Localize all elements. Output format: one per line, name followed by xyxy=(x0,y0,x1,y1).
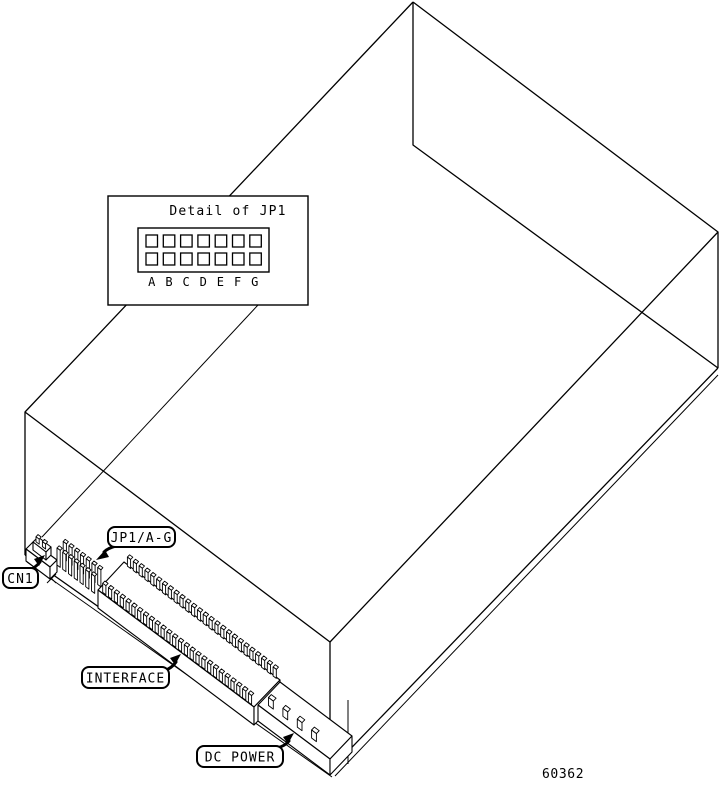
pin-face xyxy=(144,614,147,625)
jumper-pin-square xyxy=(163,253,175,265)
pin-face xyxy=(248,693,251,704)
jumper-pin-square xyxy=(215,253,227,265)
callout-dc-power-label: DC POWER xyxy=(205,751,276,766)
jp1-detail-inset: Detail of JP1 ABCDEFG xyxy=(108,196,308,305)
pin-face xyxy=(237,684,240,695)
pin-face xyxy=(151,575,154,586)
jumper-pin-square xyxy=(181,253,193,265)
pin-face xyxy=(244,645,247,656)
pin-face xyxy=(178,640,181,651)
pin-face xyxy=(145,570,148,581)
jumper-pin-square xyxy=(250,253,261,265)
pin-face xyxy=(132,605,135,616)
pin-face xyxy=(202,658,205,669)
jumper-pin-square xyxy=(181,235,193,247)
pin-face xyxy=(109,588,112,599)
pin-face xyxy=(232,636,235,648)
pin-face xyxy=(215,623,218,634)
jumper-pin-square xyxy=(163,235,175,247)
drive-diagram: Detail of JP1 ABCDEFG CN1 JP1/A-G INTERF… xyxy=(0,0,721,789)
pin-face xyxy=(157,579,160,590)
jumper-position-letter: B xyxy=(165,275,172,289)
pin-face xyxy=(126,601,129,612)
pin-face xyxy=(133,562,136,573)
jumper-position-letter: C xyxy=(182,275,189,289)
pin-face xyxy=(57,548,60,567)
pin-face xyxy=(273,667,276,678)
jumper-pin-square xyxy=(198,235,210,247)
jumper-position-letter: A xyxy=(148,275,156,289)
pin-face xyxy=(238,641,241,653)
part-number: 60362 xyxy=(542,767,584,782)
figure-canvas: Detail of JP1 ABCDEFG CN1 JP1/A-G INTERF… xyxy=(0,0,721,789)
pin-face xyxy=(114,592,117,603)
callout-cn1-label: CN1 xyxy=(7,572,33,587)
pin-face xyxy=(203,614,206,625)
pin-face xyxy=(86,570,89,589)
pin-face xyxy=(161,627,164,638)
jumper-position-letter: D xyxy=(200,275,207,289)
jumper-pin-square xyxy=(215,235,227,247)
pin-face xyxy=(225,676,228,687)
detail-leader-line xyxy=(42,305,258,537)
pin-face xyxy=(221,628,224,639)
pin-face xyxy=(196,654,199,665)
pin-face xyxy=(120,597,123,608)
pin-face xyxy=(250,649,253,660)
detail-inset-title: Detail of JP1 xyxy=(169,204,286,219)
pin-face xyxy=(231,680,234,691)
pin-face xyxy=(103,583,106,594)
pin-face xyxy=(155,623,158,635)
pin-face xyxy=(167,632,170,643)
jumper-pin-square xyxy=(233,235,245,247)
pin-face xyxy=(192,606,195,617)
pin-face xyxy=(69,557,72,576)
pin-face xyxy=(80,565,83,584)
pin-face xyxy=(209,619,212,630)
drive-body-outline xyxy=(25,2,718,770)
callout-jp1-label: JP1/A-G xyxy=(111,531,173,546)
pin-face xyxy=(208,662,211,673)
pin-face xyxy=(138,610,141,621)
pin-face xyxy=(74,561,77,580)
pin-face xyxy=(92,574,95,593)
jumper-position-letter: G xyxy=(251,275,258,289)
pin-face xyxy=(168,588,171,599)
pin-face xyxy=(162,584,165,595)
pin-face xyxy=(213,667,216,678)
pin-face xyxy=(139,566,142,577)
pin-face xyxy=(149,618,152,630)
jumper-pin-square xyxy=(146,235,158,247)
interface-connector xyxy=(98,555,280,725)
jumper-pin-square xyxy=(146,253,158,265)
jumper-position-letter: E xyxy=(217,275,224,289)
jumper-pin-square xyxy=(233,253,245,265)
pin-face xyxy=(227,632,230,643)
callout-jp1: JP1/A-G xyxy=(96,527,175,560)
jp1-jumper-block xyxy=(57,539,103,593)
pin-face xyxy=(127,557,130,568)
pin-face xyxy=(243,689,246,700)
jumper-pin-square xyxy=(250,235,261,247)
pin-face xyxy=(186,601,189,612)
pin-face xyxy=(256,654,259,665)
pin-face xyxy=(262,658,265,669)
pin-face xyxy=(267,663,270,674)
pin-face xyxy=(184,645,187,656)
callout-dc-power: DC POWER xyxy=(197,733,294,767)
pin-face xyxy=(190,649,193,660)
jumper-position-letter: F xyxy=(234,275,241,289)
pin-face xyxy=(173,636,176,647)
pin-face xyxy=(174,592,177,603)
callout-interface-label: INTERFACE xyxy=(86,672,165,687)
jumper-pin-square xyxy=(198,253,210,265)
pin-face xyxy=(98,568,101,587)
pin-face xyxy=(63,552,66,571)
pin-face xyxy=(219,671,222,682)
callout-cn1: CN1 xyxy=(3,555,45,588)
pin-face xyxy=(197,610,200,621)
pin-face xyxy=(180,597,183,608)
